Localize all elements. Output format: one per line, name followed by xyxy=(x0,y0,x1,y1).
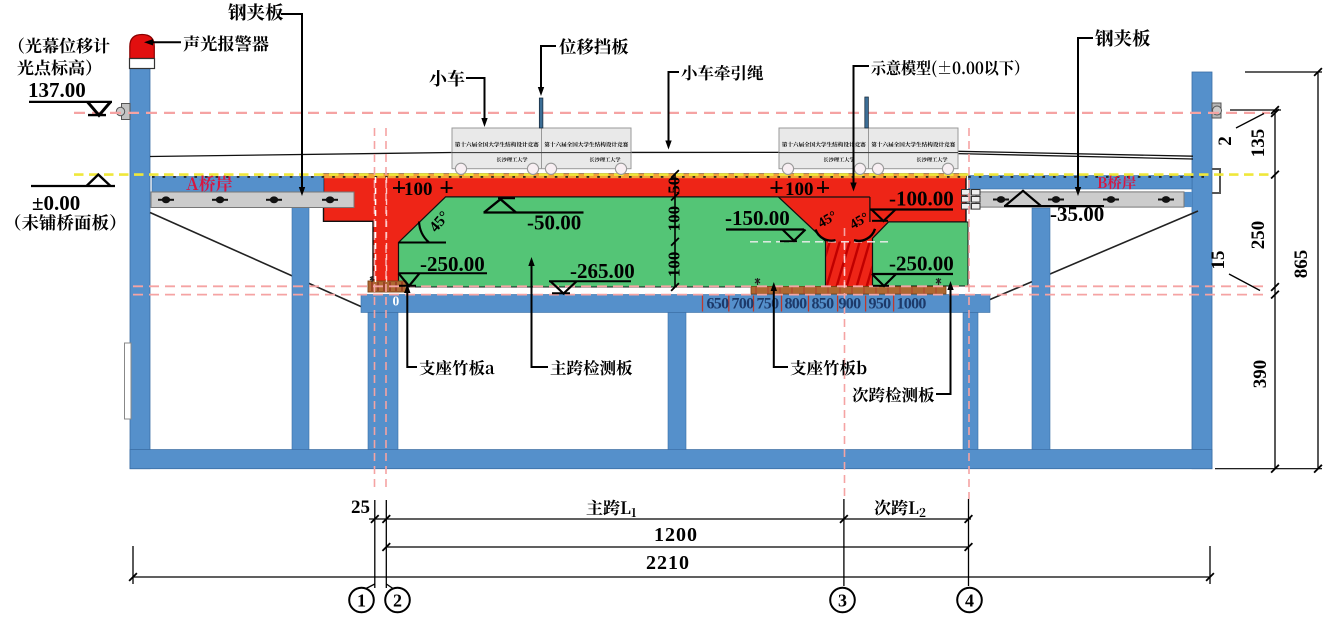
svg-text:1200: 1200 xyxy=(654,524,698,546)
svg-text:-35.00: -35.00 xyxy=(1050,202,1104,226)
svg-text:135: 135 xyxy=(1248,129,1269,158)
svg-text:1000: 1000 xyxy=(897,296,927,313)
svg-text:2210: 2210 xyxy=(646,552,690,574)
svg-text:390: 390 xyxy=(1250,360,1271,389)
svg-text:-100.00: -100.00 xyxy=(889,187,954,211)
svg-text:25: 25 xyxy=(351,497,370,518)
svg-text:137.00: 137.00 xyxy=(28,78,86,102)
svg-text:4: 4 xyxy=(965,591,974,611)
svg-text:50: 50 xyxy=(665,177,684,194)
svg-text:750: 750 xyxy=(757,296,780,313)
svg-text:865: 865 xyxy=(1291,250,1312,279)
svg-text:0: 0 xyxy=(393,294,400,309)
svg-text:-265.00: -265.00 xyxy=(570,259,635,283)
svg-text:±0.00: ±0.00 xyxy=(32,191,80,215)
svg-text:650: 650 xyxy=(707,296,730,313)
svg-text:-250.00: -250.00 xyxy=(889,252,954,276)
svg-text:2: 2 xyxy=(1215,136,1236,146)
svg-text:100: 100 xyxy=(665,252,684,278)
svg-text:800: 800 xyxy=(785,296,808,313)
svg-text:-50.00: -50.00 xyxy=(527,211,581,235)
svg-text:15: 15 xyxy=(1208,251,1229,270)
svg-text:250: 250 xyxy=(1248,221,1269,250)
svg-text:100: 100 xyxy=(665,206,684,232)
svg-text:100: 100 xyxy=(785,179,814,200)
svg-text:950: 950 xyxy=(869,296,892,313)
svg-text:3: 3 xyxy=(838,591,847,611)
svg-text:900: 900 xyxy=(839,296,862,313)
svg-text:700: 700 xyxy=(732,296,755,313)
svg-text:850: 850 xyxy=(812,296,835,313)
svg-text:-150.00: -150.00 xyxy=(725,206,790,230)
svg-text:1: 1 xyxy=(357,591,366,611)
svg-text:2: 2 xyxy=(393,591,402,611)
svg-text:100: 100 xyxy=(404,179,433,200)
